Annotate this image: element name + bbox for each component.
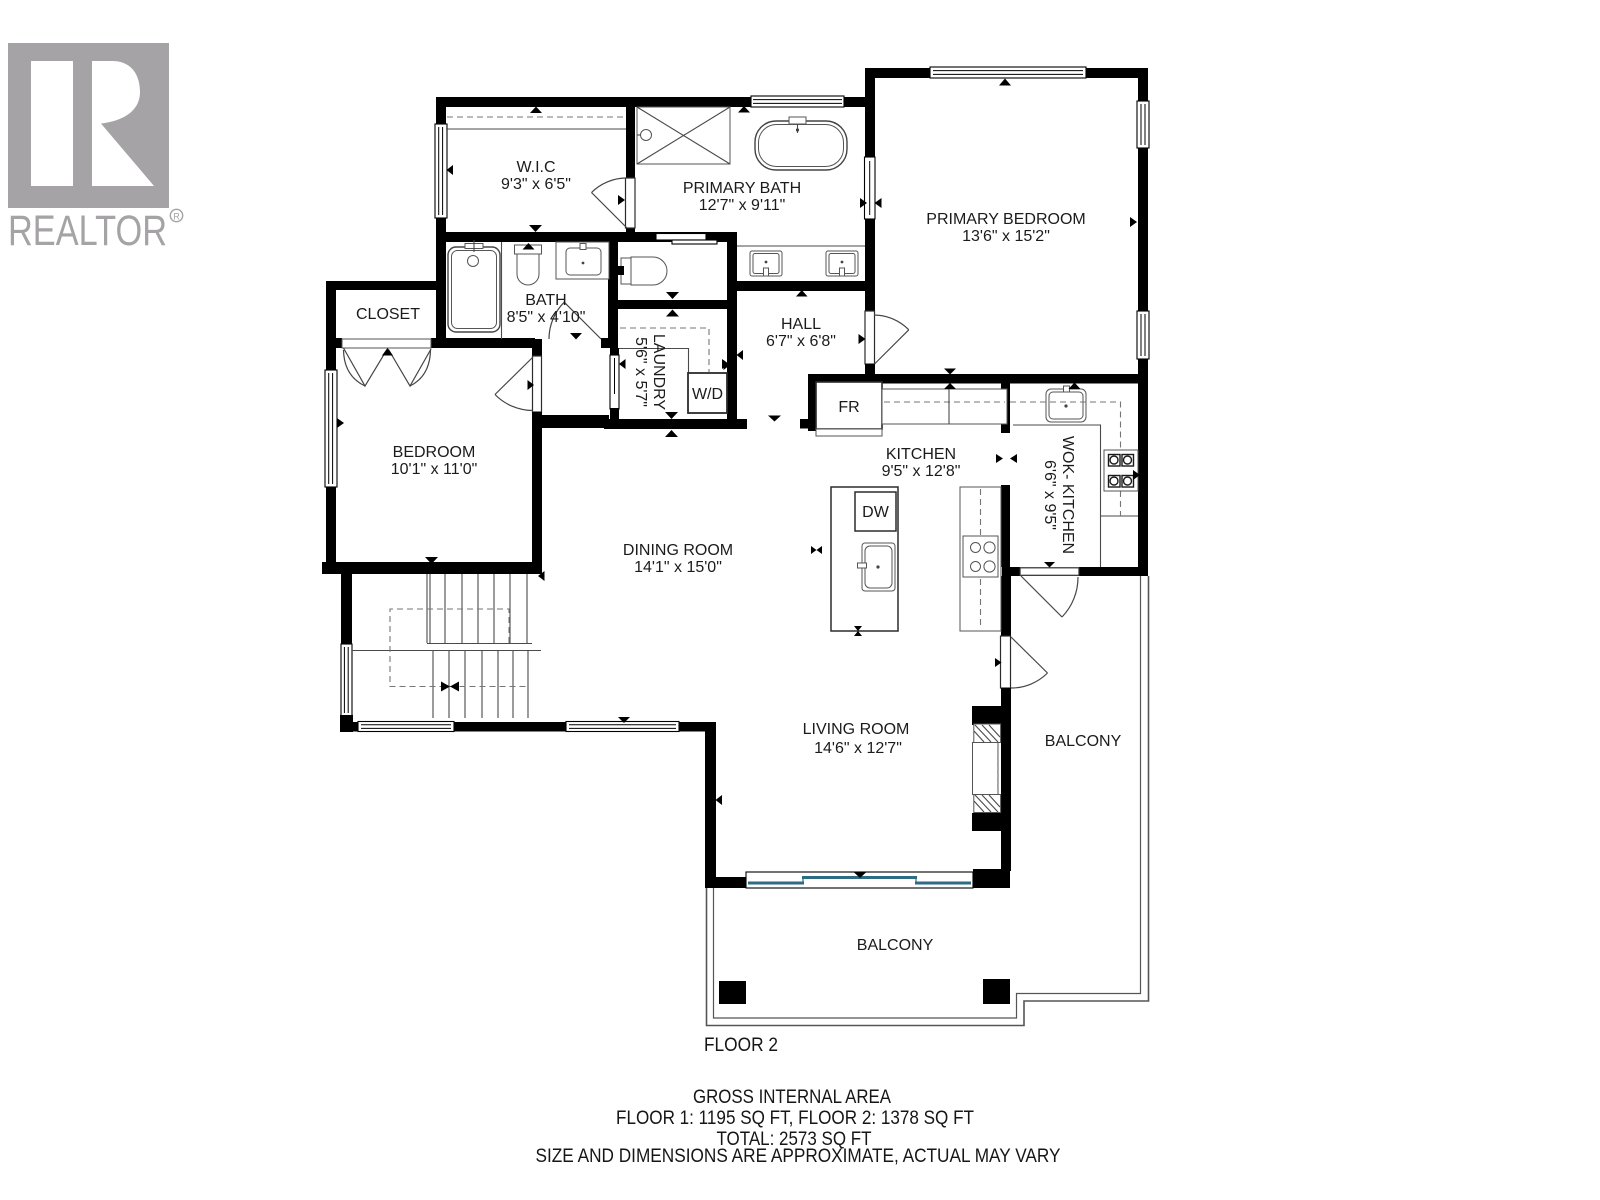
svg-text:5'6" x 5'7": 5'6" x 5'7" — [632, 337, 649, 407]
svg-text:6'6" x 9'5": 6'6" x 9'5" — [1041, 460, 1058, 530]
svg-text:9'5" x 12'8": 9'5" x 12'8" — [882, 463, 961, 480]
svg-text:R: R — [173, 212, 180, 222]
svg-text:DW: DW — [862, 504, 890, 521]
svg-text:PRIMARY BEDROOM: PRIMARY BEDROOM — [926, 211, 1085, 228]
svg-text:BEDROOM: BEDROOM — [393, 444, 476, 461]
svg-text:8'5" x 4'10": 8'5" x 4'10" — [507, 309, 586, 326]
svg-text:14'6" x 12'7": 14'6" x 12'7" — [814, 740, 902, 757]
svg-text:BALCONY: BALCONY — [1045, 733, 1122, 750]
svg-text:W/D: W/D — [692, 386, 723, 403]
svg-text:SIZE AND DIMENSIONS ARE APPROX: SIZE AND DIMENSIONS ARE APPROXIMATE, ACT… — [536, 1146, 1061, 1167]
svg-text:13'6" x 15'2": 13'6" x 15'2" — [962, 228, 1050, 245]
svg-text:6'7" x 6'8": 6'7" x 6'8" — [766, 333, 836, 350]
svg-text:FLOOR 1: 1195 SQ FT, FLOOR 2:: FLOOR 1: 1195 SQ FT, FLOOR 2: 1378 SQ FT — [616, 1108, 974, 1129]
svg-text:PRIMARY BATH: PRIMARY BATH — [683, 180, 801, 197]
svg-text:LAUNDRY: LAUNDRY — [650, 334, 667, 411]
svg-text:DINING ROOM: DINING ROOM — [623, 542, 733, 559]
svg-text:WOK- KITCHEN: WOK- KITCHEN — [1059, 436, 1076, 554]
svg-text:CLOSET: CLOSET — [356, 306, 420, 323]
svg-text:REALTOR: REALTOR — [8, 207, 167, 255]
svg-text:W.I.C: W.I.C — [516, 159, 555, 176]
svg-text:BATH: BATH — [525, 292, 566, 309]
svg-text:BALCONY: BALCONY — [857, 937, 934, 954]
svg-text:10'1" x 11'0": 10'1" x 11'0" — [391, 461, 478, 478]
svg-text:FR: FR — [838, 399, 859, 416]
svg-text:KITCHEN: KITCHEN — [886, 446, 956, 463]
svg-text:HALL: HALL — [781, 316, 821, 333]
svg-text:FLOOR 2: FLOOR 2 — [704, 1035, 778, 1056]
svg-text:9'3" x 6'5": 9'3" x 6'5" — [501, 176, 571, 193]
svg-text:GROSS INTERNAL AREA: GROSS INTERNAL AREA — [693, 1087, 891, 1108]
svg-text:LIVING ROOM: LIVING ROOM — [803, 721, 910, 738]
svg-text:12'7" x 9'11": 12'7" x 9'11" — [699, 197, 786, 214]
svg-text:14'1" x 15'0": 14'1" x 15'0" — [634, 559, 722, 576]
